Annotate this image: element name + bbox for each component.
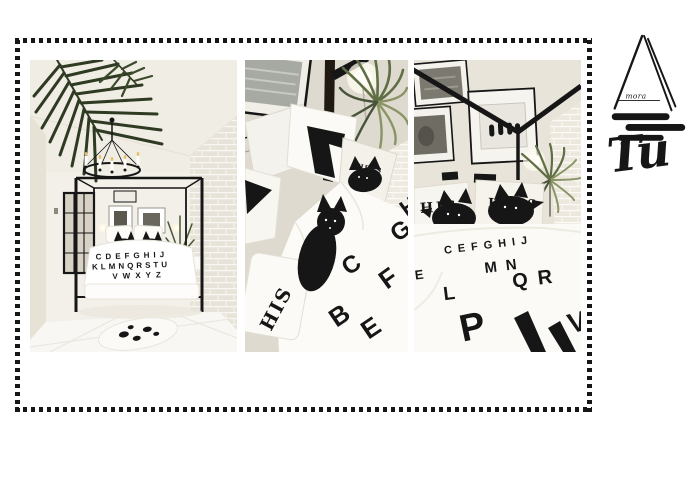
frame-edge-left: [15, 38, 20, 412]
brand-logo: mora Tu: [599, 32, 697, 174]
photo-bed-closeup[interactable]: HERS HIS: [245, 60, 408, 352]
photo-bedroom-overview-illustration: CDEFGHIJ KLMNQRSTU VWXYZ: [30, 60, 237, 352]
bedding-letters-row-3: VWXYZ: [112, 270, 166, 281]
frame-edge-right: [587, 38, 592, 412]
page: CDEFGHIJ KLMNQRSTU VWXYZ: [0, 0, 700, 500]
logo-monogram-text: mora: [625, 92, 646, 101]
photo-bed-wide-illustration: HIS HERS: [414, 60, 581, 352]
photo-bed-closeup-illustration: HERS HIS: [245, 60, 408, 352]
photo-bed-wide[interactable]: HIS HERS: [414, 60, 581, 352]
frame-edge-bottom: [15, 407, 592, 412]
logo-wordmark: Tu: [604, 122, 671, 174]
left-wall: [30, 115, 46, 340]
brand-logo-mark: mora Tu: [599, 32, 697, 174]
photo-bedroom-overview[interactable]: CDEFGHIJ KLMNQRSTU VWXYZ: [30, 60, 237, 352]
frame-edge-top: [15, 38, 592, 43]
